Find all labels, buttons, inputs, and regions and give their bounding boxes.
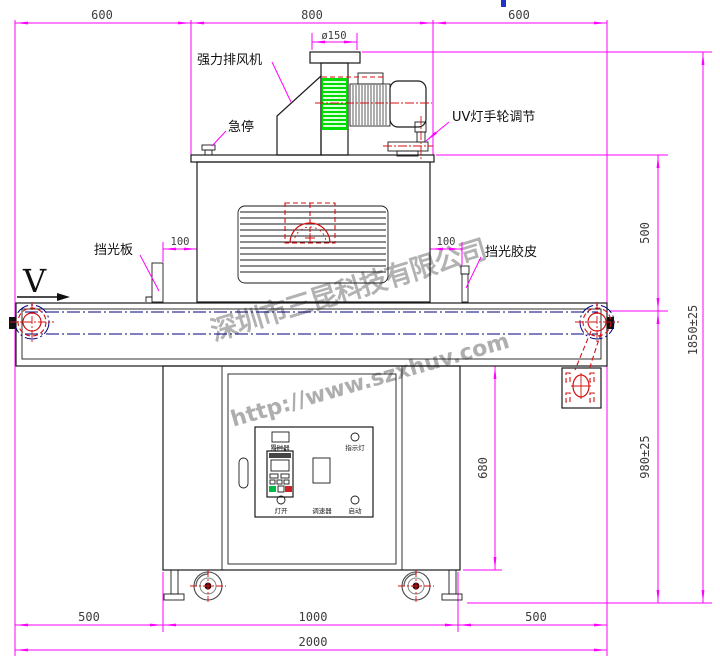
watermark-company: 深圳市三昆科技有限公司 [207, 233, 490, 347]
dim-gap-right: 100 [437, 236, 456, 248]
drawing-canvas: 深圳市三昆科技有限公司 http://www.szxhuv.com 600 80… [0, 0, 720, 662]
watermark-url: http://www.szxhuv.com [228, 329, 512, 433]
speed-label: 调速器 [312, 506, 332, 515]
vfd-controller-icon [267, 448, 293, 497]
drive-motor-plate [562, 331, 601, 408]
foot-right [442, 570, 462, 600]
motor-fins [350, 84, 390, 126]
fan-green-grille [322, 78, 347, 130]
dim-oven-to-belt: 500 [638, 222, 652, 244]
uv-lamp-symbol [285, 203, 335, 243]
dim-top-right: 600 [508, 8, 530, 22]
shade-rubber-label: 挡光胶皮 [485, 244, 537, 260]
dim-cabinet-height: 680 [476, 457, 490, 479]
indicator-light-icon [351, 433, 359, 441]
exhaust-fan-assembly [277, 52, 432, 155]
start-label: 启动 [349, 506, 363, 515]
machine-layer: 累时器 指示灯 灯开 调速器 启动 [9, 52, 619, 602]
conveyor [9, 302, 619, 366]
start-button-icon [351, 496, 359, 504]
dim-gap-left: 100 [171, 236, 190, 248]
motor-terminal-box [358, 73, 383, 84]
duct-flange [310, 52, 360, 63]
dim-top-left: 600 [91, 8, 113, 22]
dim-bottom-right: 500 [525, 610, 547, 624]
shade-plate-label: 挡光板 [94, 243, 133, 258]
emergency-stop-button-icon [202, 145, 215, 155]
timer-window [272, 432, 289, 442]
dim-duct-diameter: ø150 [321, 30, 346, 42]
watermark-layer: 深圳市三昆科技有限公司 http://www.szxhuv.com [207, 233, 512, 432]
caster-left-icon [190, 570, 226, 602]
dim-overall-length: 2000 [299, 635, 328, 649]
uv-machine-drawing: 深圳市三昆科技有限公司 http://www.szxhuv.com 600 80… [0, 0, 720, 662]
uv-handwheel-label: UV灯手轮调节 [452, 110, 535, 125]
fan-scroll-housing [277, 76, 321, 155]
emergency-stop-label: 急停 [228, 119, 254, 135]
dim-bottom-left: 500 [78, 610, 100, 624]
dim-bottom-mid: 1000 [299, 610, 328, 624]
door-handle [239, 458, 248, 488]
dim-overall-height: 1850±25 [686, 305, 700, 356]
caster-right-icon [398, 570, 434, 602]
foot-left [164, 570, 184, 600]
top-edge-artifact [501, 0, 506, 7]
speed-knob-window [313, 458, 330, 483]
belt-direction-label: V [22, 262, 47, 300]
indicator-label: 指示灯 [345, 443, 365, 452]
exhaust-fan-label: 强力排风机 [197, 53, 262, 68]
control-panel: 累时器 指示灯 灯开 调速器 启动 [255, 427, 373, 517]
dim-top-mid: 800 [301, 8, 323, 22]
lamp-on-label: 灯开 [275, 506, 289, 515]
dim-belt-height: 980±25 [638, 435, 652, 478]
